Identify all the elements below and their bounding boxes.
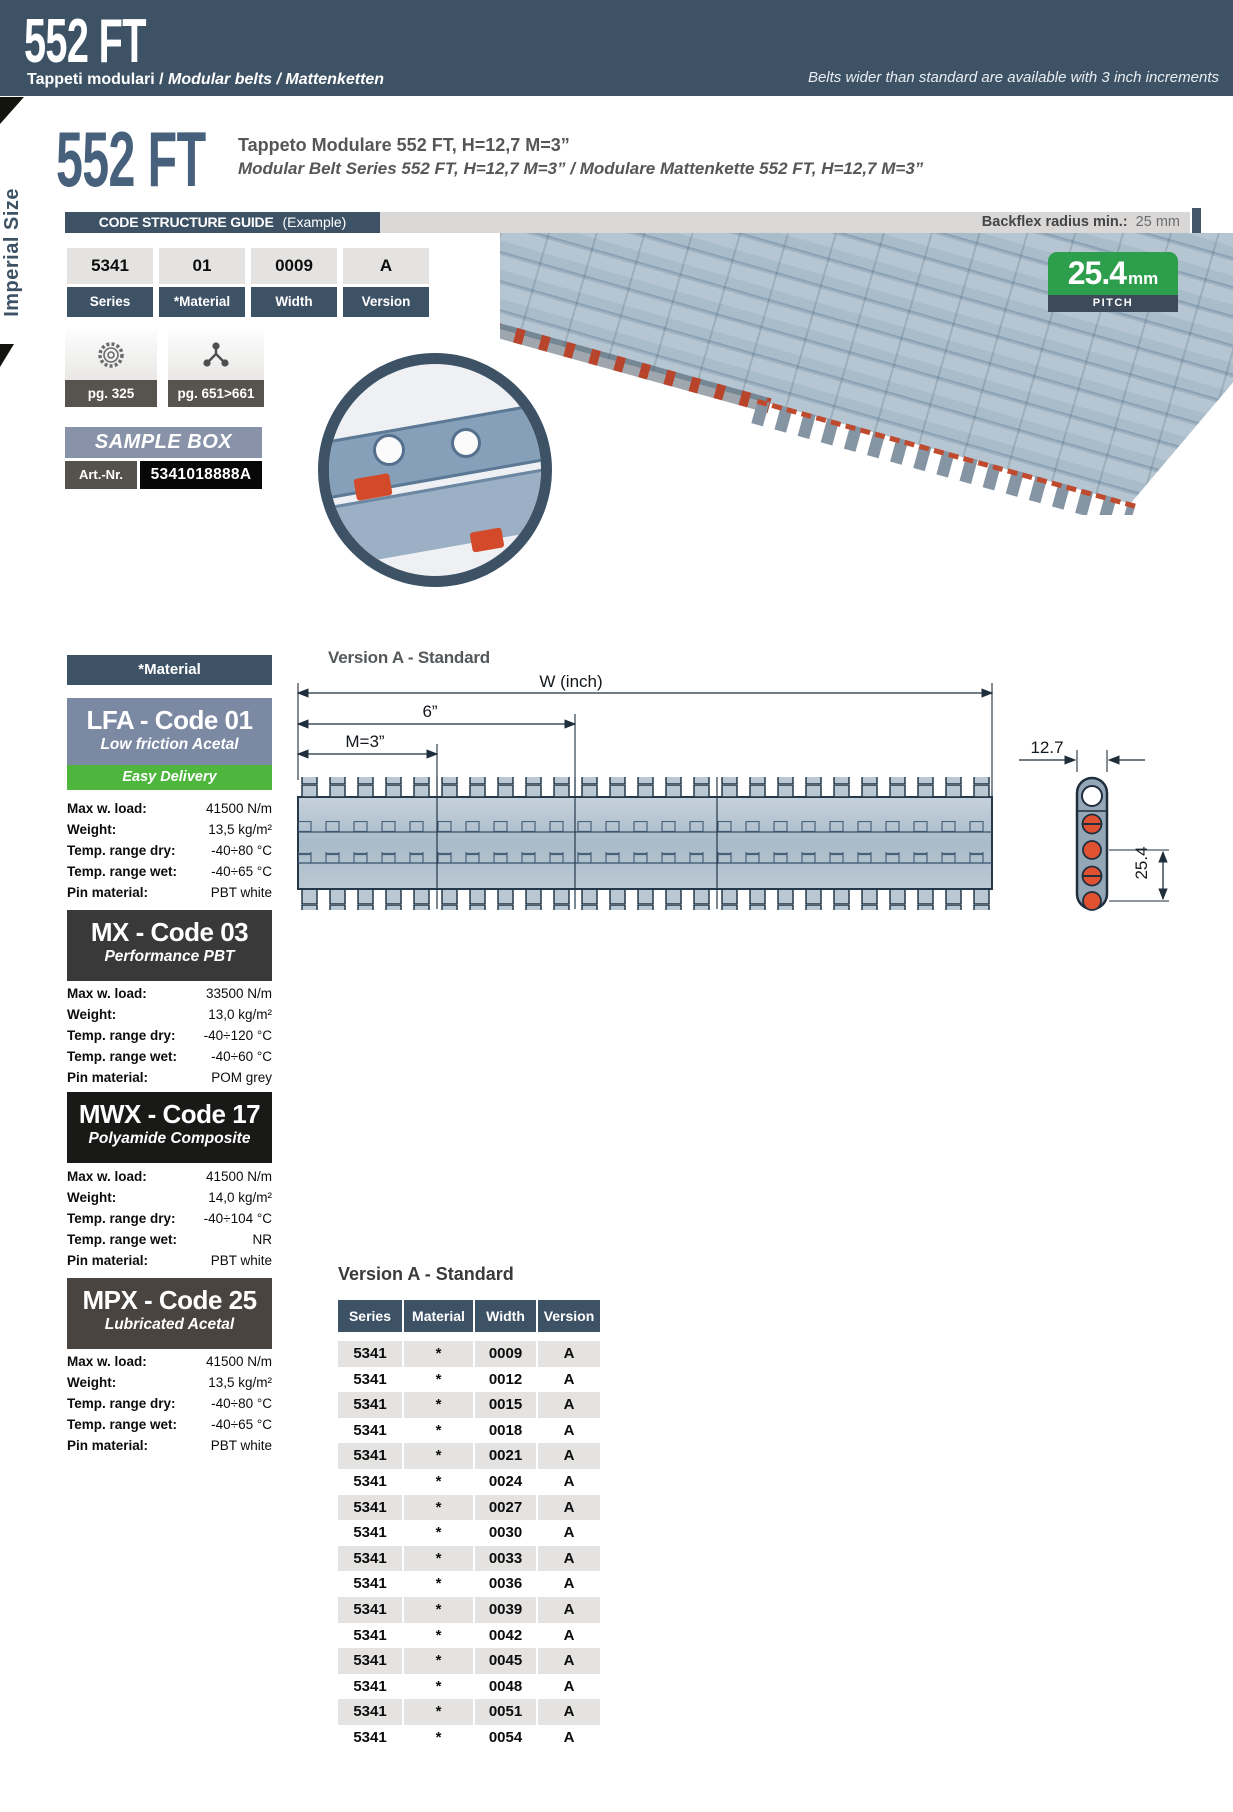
code-label: Version (343, 287, 429, 317)
material-block-mwx: MWX - Code 17 Polyamide Composite (67, 1092, 272, 1163)
cell-version: A (538, 1392, 600, 1418)
cell-material: * (404, 1571, 473, 1597)
material-name: Low friction Acetal (67, 735, 272, 755)
cell-material: * (404, 1597, 473, 1623)
spec-value: 41500 N/m (206, 798, 272, 819)
pitch-badge: 25.4mm PITCH (1048, 252, 1178, 312)
material-code: MWX - Code 17 (67, 1099, 272, 1129)
spec-value: 13,5 kg/m² (208, 819, 272, 840)
spec-row: Temp. range wet: -40÷65 °C (67, 1414, 272, 1435)
spec-label: Max w. load: (67, 798, 147, 819)
easy-delivery-tag: Easy Delivery (67, 765, 272, 790)
dim-w-label: W (inch) (539, 672, 602, 691)
spec-label: Pin material: (67, 1067, 148, 1088)
material-specs-lfa: Max w. load: 41500 N/m Weight: 13,5 kg/m… (67, 798, 272, 903)
hinge-hole (451, 428, 481, 458)
cell-width: 0048 (475, 1674, 536, 1700)
cell-material: * (404, 1725, 473, 1751)
spec-label: Max w. load: (67, 1351, 147, 1372)
parts-table-heading: Version A - Standard (338, 1264, 514, 1285)
cell-series: 5341 (338, 1725, 402, 1751)
spec-value: NR (253, 1229, 273, 1250)
cell-width: 0027 (475, 1495, 536, 1521)
spec-value: -40÷80 °C (211, 1393, 272, 1414)
cell-series: 5341 (338, 1341, 402, 1367)
cell-series: 5341 (338, 1443, 402, 1469)
table-row: 5341 * 0039 A (338, 1597, 600, 1623)
spec-value: 41500 N/m (206, 1166, 272, 1187)
table-row: 5341 * 0024 A (338, 1469, 600, 1495)
header-subtitle: Tappeti modulari / Modular belts / Matte… (27, 71, 384, 89)
page-ref-label: pg. 651>661 (168, 380, 264, 407)
cell-series: 5341 (338, 1469, 402, 1495)
cell-series: 5341 (338, 1392, 402, 1418)
cell-material: * (404, 1495, 473, 1521)
cell-series: 5341 (338, 1367, 402, 1393)
material-name: Polyamide Composite (67, 1129, 272, 1149)
spec-label: Temp. range wet: (67, 1046, 177, 1067)
cell-material: * (404, 1674, 473, 1700)
material-block-mx: MX - Code 03 Performance PBT (67, 910, 272, 981)
cell-material: * (404, 1699, 473, 1725)
cell-version: A (538, 1571, 600, 1597)
code-label: Width (251, 287, 337, 317)
spec-value: -40÷65 °C (211, 861, 272, 882)
spec-value: PBT white (211, 1250, 272, 1271)
parts-column-header: Series (338, 1300, 402, 1332)
cell-width: 0033 (475, 1546, 536, 1572)
material-name: Lubricated Acetal (67, 1315, 272, 1335)
spec-label: Temp. range dry: (67, 1393, 176, 1414)
spec-label: Max w. load: (67, 1166, 147, 1187)
dim-6-label: 6” (422, 702, 437, 721)
cell-width: 0018 (475, 1418, 536, 1444)
spec-value: 33500 N/m (206, 983, 272, 1004)
cell-series: 5341 (338, 1520, 402, 1546)
material-block-mpx: MPX - Code 25 Lubricated Acetal (67, 1278, 272, 1349)
cell-material: * (404, 1443, 473, 1469)
spec-value: 13,5 kg/m² (208, 1372, 272, 1393)
spec-label: Temp. range wet: (67, 1414, 177, 1435)
spec-value: -40÷65 °C (211, 1414, 272, 1435)
material-specs-mwx: Max w. load: 41500 N/m Weight: 14,0 kg/m… (67, 1166, 272, 1271)
table-row: 5341 * 0030 A (338, 1520, 600, 1546)
table-row: 5341 * 0027 A (338, 1495, 600, 1521)
spec-label: Pin material: (67, 1435, 148, 1456)
code-structure-title-text: CODE STRUCTURE GUIDE (99, 214, 274, 230)
cell-version: A (538, 1699, 600, 1725)
parts-table-body: 5341 * 0009 A 5341 * 0012 A 5341 * 0015 … (338, 1341, 600, 1751)
material-column-header: *Material (67, 655, 272, 685)
product-description-line1: Tappeto Modulare 552 FT, H=12,7 M=3” (238, 134, 923, 157)
detail-magnifier (318, 353, 552, 587)
cell-version: A (538, 1623, 600, 1649)
cell-material: * (404, 1623, 473, 1649)
cell-series: 5341 (338, 1495, 402, 1521)
spec-label: Temp. range dry: (67, 1025, 176, 1046)
code-structure-example: (Example) (283, 214, 347, 230)
spec-label: Temp. range wet: (67, 861, 177, 882)
cell-series: 5341 (338, 1418, 402, 1444)
code-value: 5341 (67, 248, 153, 284)
code-cell: 5341 Series (67, 248, 153, 317)
spec-row: Temp. range wet: -40÷60 °C (67, 1046, 272, 1067)
code-label: *Material (159, 287, 245, 317)
table-row: 5341 * 0015 A (338, 1392, 600, 1418)
code-structure-bar: CODE STRUCTURE GUIDE (Example) Backflex … (65, 212, 1190, 233)
cell-version: A (538, 1648, 600, 1674)
material-block-lfa: LFA - Code 01 Low friction Acetal (67, 698, 272, 769)
material-name: Performance PBT (67, 947, 272, 967)
cell-width: 0021 (475, 1443, 536, 1469)
spec-label: Temp. range dry: (67, 1208, 176, 1229)
spec-label: Pin material: (67, 1250, 148, 1271)
cell-version: A (538, 1546, 600, 1572)
cell-width: 0036 (475, 1571, 536, 1597)
cell-series: 5341 (338, 1699, 402, 1725)
material-specs-mpx: Max w. load: 41500 N/m Weight: 13,5 kg/m… (67, 1351, 272, 1456)
product-description-line2: Modular Belt Series 552 FT, H=12,7 M=3” … (238, 157, 923, 180)
spec-label: Weight: (67, 819, 116, 840)
header-title: 552 FT (24, 6, 146, 77)
spec-value: -40÷104 °C (204, 1208, 272, 1229)
header-subtitle-plain: Tappeti modulari / (27, 71, 168, 88)
code-label: Series (67, 287, 153, 317)
code-cell: 0009 Width (251, 248, 337, 317)
cell-series: 5341 (338, 1648, 402, 1674)
table-row: 5341 * 0042 A (338, 1623, 600, 1649)
pitch-value: 25.4 (1068, 255, 1126, 291)
spec-row: Temp. range dry: -40÷120 °C (67, 1025, 272, 1046)
spec-label: Temp. range wet: (67, 1229, 177, 1250)
spec-row: Pin material: POM grey (67, 1067, 272, 1088)
code-value: 0009 (251, 248, 337, 284)
spec-value: 13,0 kg/m² (208, 1004, 272, 1025)
belt-top-view (298, 777, 992, 910)
table-row: 5341 * 0051 A (338, 1699, 600, 1725)
cell-version: A (538, 1418, 600, 1444)
article-number-row: Art.-Nr. 5341018888A (65, 461, 262, 489)
spec-value: -40÷60 °C (211, 1046, 272, 1067)
cell-version: A (538, 1469, 600, 1495)
code-cells: 5341 Series 01 *Material 0009 Width A Ve… (67, 248, 429, 317)
parts-column-header: Version (538, 1300, 600, 1332)
cell-width: 0009 (475, 1341, 536, 1367)
spec-row: Temp. range wet: -40÷65 °C (67, 861, 272, 882)
table-row: 5341 * 0054 A (338, 1725, 600, 1751)
spec-label: Pin material: (67, 882, 148, 903)
page-ref-label: pg. 325 (65, 380, 157, 407)
cell-version: A (538, 1495, 600, 1521)
cell-material: * (404, 1418, 473, 1444)
material-specs-mx: Max w. load: 33500 N/m Weight: 13,0 kg/m… (67, 983, 272, 1088)
spec-value: PBT white (211, 882, 272, 903)
spec-row: Temp. range dry: -40÷80 °C (67, 840, 272, 861)
cell-series: 5341 (338, 1546, 402, 1572)
cell-version: A (538, 1597, 600, 1623)
dim-127-label: 12.7 (1030, 738, 1063, 757)
cell-material: * (404, 1469, 473, 1495)
table-row: 5341 * 0045 A (338, 1648, 600, 1674)
cell-material: * (404, 1546, 473, 1572)
cell-version: A (538, 1341, 600, 1367)
cell-width: 0012 (475, 1367, 536, 1393)
cell-material: * (404, 1392, 473, 1418)
hinge-hole (373, 434, 405, 466)
cell-material: * (404, 1520, 473, 1546)
spec-label: Weight: (67, 1187, 116, 1208)
cell-width: 0039 (475, 1597, 536, 1623)
pitch-label: PITCH (1048, 295, 1178, 312)
code-value: A (343, 248, 429, 284)
code-cell: 01 *Material (159, 248, 245, 317)
red-pin (470, 527, 505, 552)
dim-254-label: 25.4 (1132, 846, 1151, 879)
spec-row: Temp. range dry: -40÷104 °C (67, 1208, 272, 1229)
table-row: 5341 * 0036 A (338, 1571, 600, 1597)
header-note: Belts wider than standard are available … (808, 69, 1219, 86)
backflex-value: 25 mm (1136, 214, 1180, 230)
cell-width: 0042 (475, 1623, 536, 1649)
backflex-label: Backflex radius min.: (982, 214, 1128, 230)
belt-cross-section: 12.7 25.4 (1019, 738, 1169, 910)
material-code: LFA - Code 01 (67, 705, 272, 735)
table-row: 5341 * 0009 A (338, 1341, 600, 1367)
spec-row: Temp. range wet: NR (67, 1229, 272, 1250)
spec-row: Weight: 13,0 kg/m² (67, 1004, 272, 1025)
spec-row: Pin material: PBT white (67, 882, 272, 903)
product-description: Tappeto Modulare 552 FT, H=12,7 M=3” Mod… (238, 134, 923, 180)
code-cell: A Version (343, 248, 429, 317)
cell-width: 0030 (475, 1520, 536, 1546)
cell-material: * (404, 1367, 473, 1393)
page-ref-accessories: pg. 651>661 (168, 329, 264, 407)
pitch-value-badge: 25.4mm (1048, 252, 1178, 295)
spec-row: Weight: 13,5 kg/m² (67, 1372, 272, 1393)
spec-value: -40÷80 °C (211, 840, 272, 861)
cell-series: 5341 (338, 1674, 402, 1700)
spec-row: Max w. load: 41500 N/m (67, 1351, 272, 1372)
page-corner-marker (0, 97, 24, 124)
cell-version: A (538, 1443, 600, 1469)
spec-row: Max w. load: 33500 N/m (67, 983, 272, 1004)
spec-label: Temp. range dry: (67, 840, 176, 861)
cell-version: A (538, 1725, 600, 1751)
cell-width: 0051 (475, 1699, 536, 1725)
table-row: 5341 * 0048 A (338, 1674, 600, 1700)
cell-width: 0045 (475, 1648, 536, 1674)
spec-row: Pin material: PBT white (67, 1250, 272, 1271)
spec-value: PBT white (211, 1435, 272, 1456)
cell-material: * (404, 1648, 473, 1674)
imperial-size-label: Imperial Size (1, 188, 24, 317)
spec-value: POM grey (211, 1067, 272, 1088)
product-title: 552 FT (56, 114, 205, 205)
cell-series: 5341 (338, 1597, 402, 1623)
material-code: MPX - Code 25 (67, 1285, 272, 1315)
cell-series: 5341 (338, 1623, 402, 1649)
transfer-icon (168, 329, 264, 380)
page-ref-sprockets: pg. 325 (65, 329, 157, 407)
header-subtitle-italic: Modular belts / Mattenketten (168, 71, 384, 88)
spec-value: 41500 N/m (206, 1351, 272, 1372)
page-header: 552 FT Tappeti modulari / Modular belts … (0, 0, 1233, 96)
article-number-label: Art.-Nr. (65, 461, 137, 489)
spec-row: Pin material: PBT white (67, 1435, 272, 1456)
table-row: 5341 * 0012 A (338, 1367, 600, 1393)
sample-box-banner: SAMPLE BOX (65, 427, 262, 458)
cell-width: 0015 (475, 1392, 536, 1418)
spec-row: Max w. load: 41500 N/m (67, 798, 272, 819)
section-corner-marker (0, 344, 14, 367)
technical-drawing: W (inch) 6” M=3” 12.7 (297, 645, 1187, 920)
parts-column-header: Width (475, 1300, 536, 1332)
spec-row: Weight: 13,5 kg/m² (67, 819, 272, 840)
spec-label: Max w. load: (67, 983, 147, 1004)
material-code: MX - Code 03 (67, 917, 272, 947)
cell-series: 5341 (338, 1571, 402, 1597)
cell-width: 0024 (475, 1469, 536, 1495)
code-value: 01 (159, 248, 245, 284)
spec-row: Max w. load: 41500 N/m (67, 1166, 272, 1187)
cell-version: A (538, 1367, 600, 1393)
spec-row: Temp. range dry: -40÷80 °C (67, 1393, 272, 1414)
article-number-value: 5341018888A (140, 461, 262, 489)
code-structure-title: CODE STRUCTURE GUIDE (Example) (65, 212, 380, 233)
cell-version: A (538, 1520, 600, 1546)
backflex-note: Backflex radius min.: 25 mm (982, 212, 1180, 233)
dim-m-label: M=3” (345, 732, 385, 751)
cell-width: 0054 (475, 1725, 536, 1751)
pitch-unit: mm (1128, 269, 1158, 288)
parts-column-header: Material (404, 1300, 473, 1332)
table-row: 5341 * 0033 A (338, 1546, 600, 1572)
table-row: 5341 * 0018 A (338, 1418, 600, 1444)
cell-material: * (404, 1341, 473, 1367)
cell-version: A (538, 1674, 600, 1700)
spec-value: 14,0 kg/m² (208, 1187, 272, 1208)
spec-row: Weight: 14,0 kg/m² (67, 1187, 272, 1208)
spec-label: Weight: (67, 1372, 116, 1393)
table-row: 5341 * 0021 A (338, 1443, 600, 1469)
parts-table-header: Series Material Width Version (338, 1300, 600, 1332)
spec-label: Weight: (67, 1004, 116, 1025)
spec-value: -40÷120 °C (204, 1025, 272, 1046)
gear-icon (65, 329, 157, 380)
